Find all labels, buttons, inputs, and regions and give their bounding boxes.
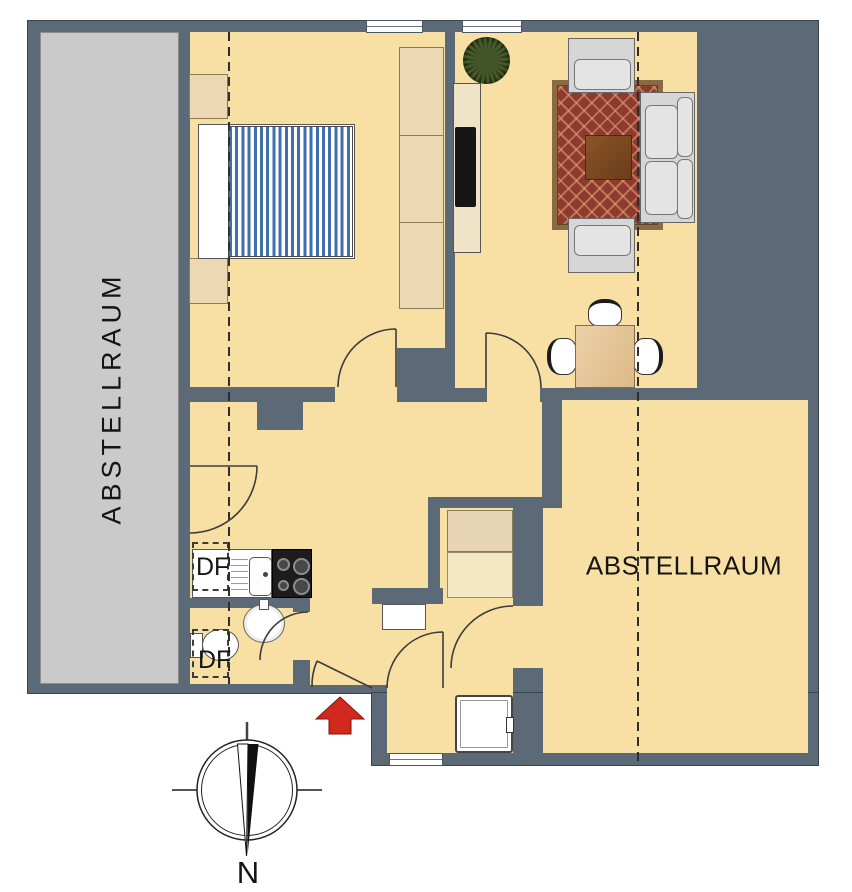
sink-basin bbox=[249, 557, 272, 596]
closet-upper bbox=[447, 510, 513, 552]
dining-table bbox=[575, 325, 635, 388]
wall-niche bbox=[382, 604, 426, 630]
window-bedroom bbox=[366, 20, 423, 33]
df-label-top: DF bbox=[196, 553, 229, 582]
compass-rose-icon bbox=[172, 722, 322, 856]
entrance-arrow-icon bbox=[316, 697, 364, 734]
shower-inner-line bbox=[460, 700, 508, 748]
opening-bedroom-door bbox=[335, 387, 397, 402]
tv bbox=[455, 127, 476, 207]
sink-faucet bbox=[263, 572, 268, 577]
shower-handle bbox=[506, 717, 514, 733]
armchair-top bbox=[568, 38, 635, 93]
chimney-block bbox=[397, 348, 445, 402]
df-label-bottom: DF bbox=[198, 646, 231, 675]
bed-mattress bbox=[228, 126, 353, 257]
closet-lower bbox=[447, 552, 513, 598]
room-storage-right-strip bbox=[543, 508, 562, 753]
section-line-right bbox=[637, 32, 639, 762]
armchair-top-seat bbox=[574, 59, 631, 90]
dining-chair-top bbox=[588, 299, 622, 327]
niche-wall bbox=[372, 588, 443, 604]
stove-burner bbox=[293, 578, 310, 595]
stove bbox=[272, 549, 312, 598]
floor-plan: ABSTELLRAUM ABSTELLRAUM DF DF N bbox=[0, 0, 852, 892]
storage-right-label: ABSTELLRAUM bbox=[586, 551, 782, 582]
stove-burner bbox=[277, 558, 290, 571]
opening-living-door bbox=[487, 388, 540, 402]
window-vestibule bbox=[389, 753, 443, 766]
armchair-bottom bbox=[568, 218, 635, 273]
stove-burner bbox=[293, 558, 310, 575]
sofa-seat-cushion-top bbox=[645, 105, 678, 159]
compass-north-label: N bbox=[237, 855, 259, 891]
sofa-back-cushion-top bbox=[677, 97, 693, 157]
sofa-back-cushion-bottom bbox=[677, 159, 693, 219]
window-living bbox=[462, 20, 522, 33]
nightstand-top bbox=[189, 74, 228, 119]
opening-storage-right-door bbox=[513, 606, 543, 668]
sofa bbox=[640, 92, 695, 223]
storage-left-label: ABSTELLRAUM bbox=[97, 271, 128, 524]
section-line-left bbox=[228, 32, 230, 684]
armchair-bottom-seat bbox=[574, 225, 631, 256]
wardrobe bbox=[399, 47, 444, 309]
washbasin-tap bbox=[259, 599, 269, 610]
plant-icon bbox=[463, 37, 510, 84]
dining-chair-left bbox=[547, 338, 577, 375]
sofa-seat-cushion-bottom bbox=[645, 161, 678, 215]
stove-burner bbox=[278, 580, 289, 591]
shower bbox=[455, 695, 513, 753]
hall-wall-stub bbox=[257, 402, 303, 430]
coffee-table bbox=[585, 135, 632, 180]
opening-wc-door bbox=[293, 612, 310, 660]
nightstand-bottom bbox=[189, 258, 228, 304]
sink-drainboard bbox=[231, 559, 248, 595]
